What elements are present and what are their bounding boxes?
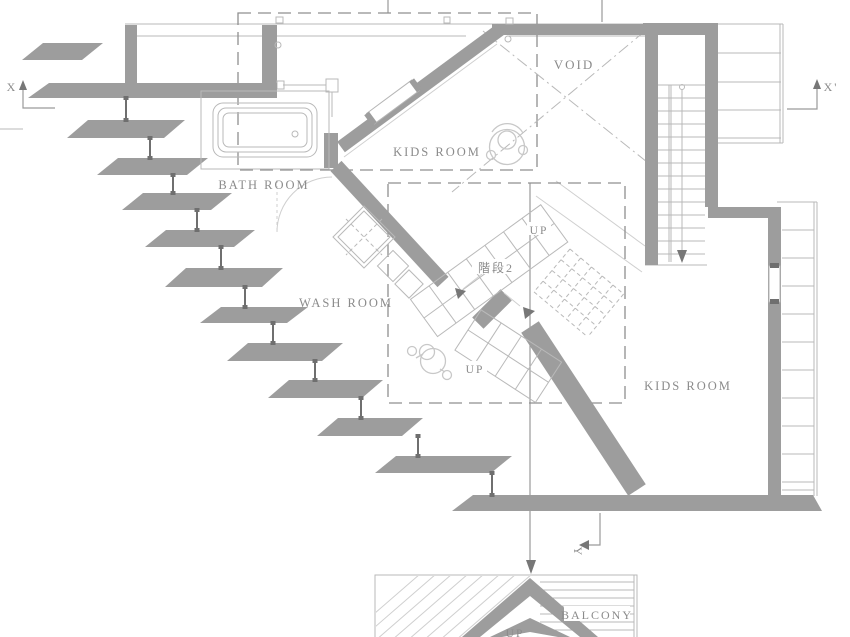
bath-room-label: BATH ROOM	[218, 178, 309, 192]
wall-shaft-left	[645, 23, 658, 265]
stair-flight-dashed	[534, 249, 624, 337]
up-upper-label: UP	[530, 225, 549, 237]
wash-room-label: WASH ROOM	[299, 296, 393, 310]
wall-shaft-right	[705, 23, 718, 207]
balcony-wall-inner	[490, 618, 570, 637]
stair-direction-arrow	[523, 307, 535, 319]
section-marker-x-prime: X'	[787, 79, 838, 109]
floor-slab	[452, 495, 822, 511]
floor-plan-drawing: X X' Y VOID KIDS ROOM BATH ROOM WASH ROO…	[0, 0, 850, 637]
wall-shaft-cap	[643, 23, 718, 35]
wall-kidsroom-top	[708, 207, 781, 218]
wall-kidsroom-right	[768, 218, 781, 496]
window-right-wall	[769, 263, 780, 304]
section-marker-y: Y	[571, 513, 600, 557]
deck-right	[777, 202, 817, 496]
upper-stair-shaft	[658, 85, 705, 264]
kids-room-upper-label: KIDS ROOM	[393, 145, 481, 159]
bathtub-drain	[292, 131, 298, 137]
balcony-area	[344, 574, 637, 637]
void-label: VOID	[554, 57, 595, 72]
vanity-unit	[377, 250, 408, 281]
person-standing	[408, 345, 452, 380]
stair-down-arrow	[677, 250, 687, 263]
section-label-y: Y	[571, 547, 585, 558]
section-label-x-prime: X'	[824, 80, 839, 94]
deck-top-right	[718, 24, 783, 143]
wall-diagonal-main	[530, 327, 637, 490]
section-label-x: X	[7, 80, 18, 94]
balcony-label: BALCONY	[561, 608, 633, 622]
stair-direction-arrow	[455, 288, 466, 299]
floating-stairs	[22, 43, 822, 511]
up-balcony-label: UP	[506, 628, 525, 637]
window-diagonal	[364, 78, 422, 125]
bathroom	[201, 91, 332, 232]
up-lower-label: UP	[466, 364, 485, 376]
floor-plan-page: X X' Y VOID KIDS ROOM BATH ROOM WASH ROO…	[0, 0, 850, 637]
wall-corner-block	[324, 133, 338, 168]
vanity-unit	[395, 270, 423, 298]
section-arrow-down	[526, 560, 536, 574]
stair2-label: 階段2	[478, 260, 514, 275]
bathtub	[213, 103, 317, 157]
kids-room-lower-label: KIDS ROOM	[644, 379, 732, 393]
